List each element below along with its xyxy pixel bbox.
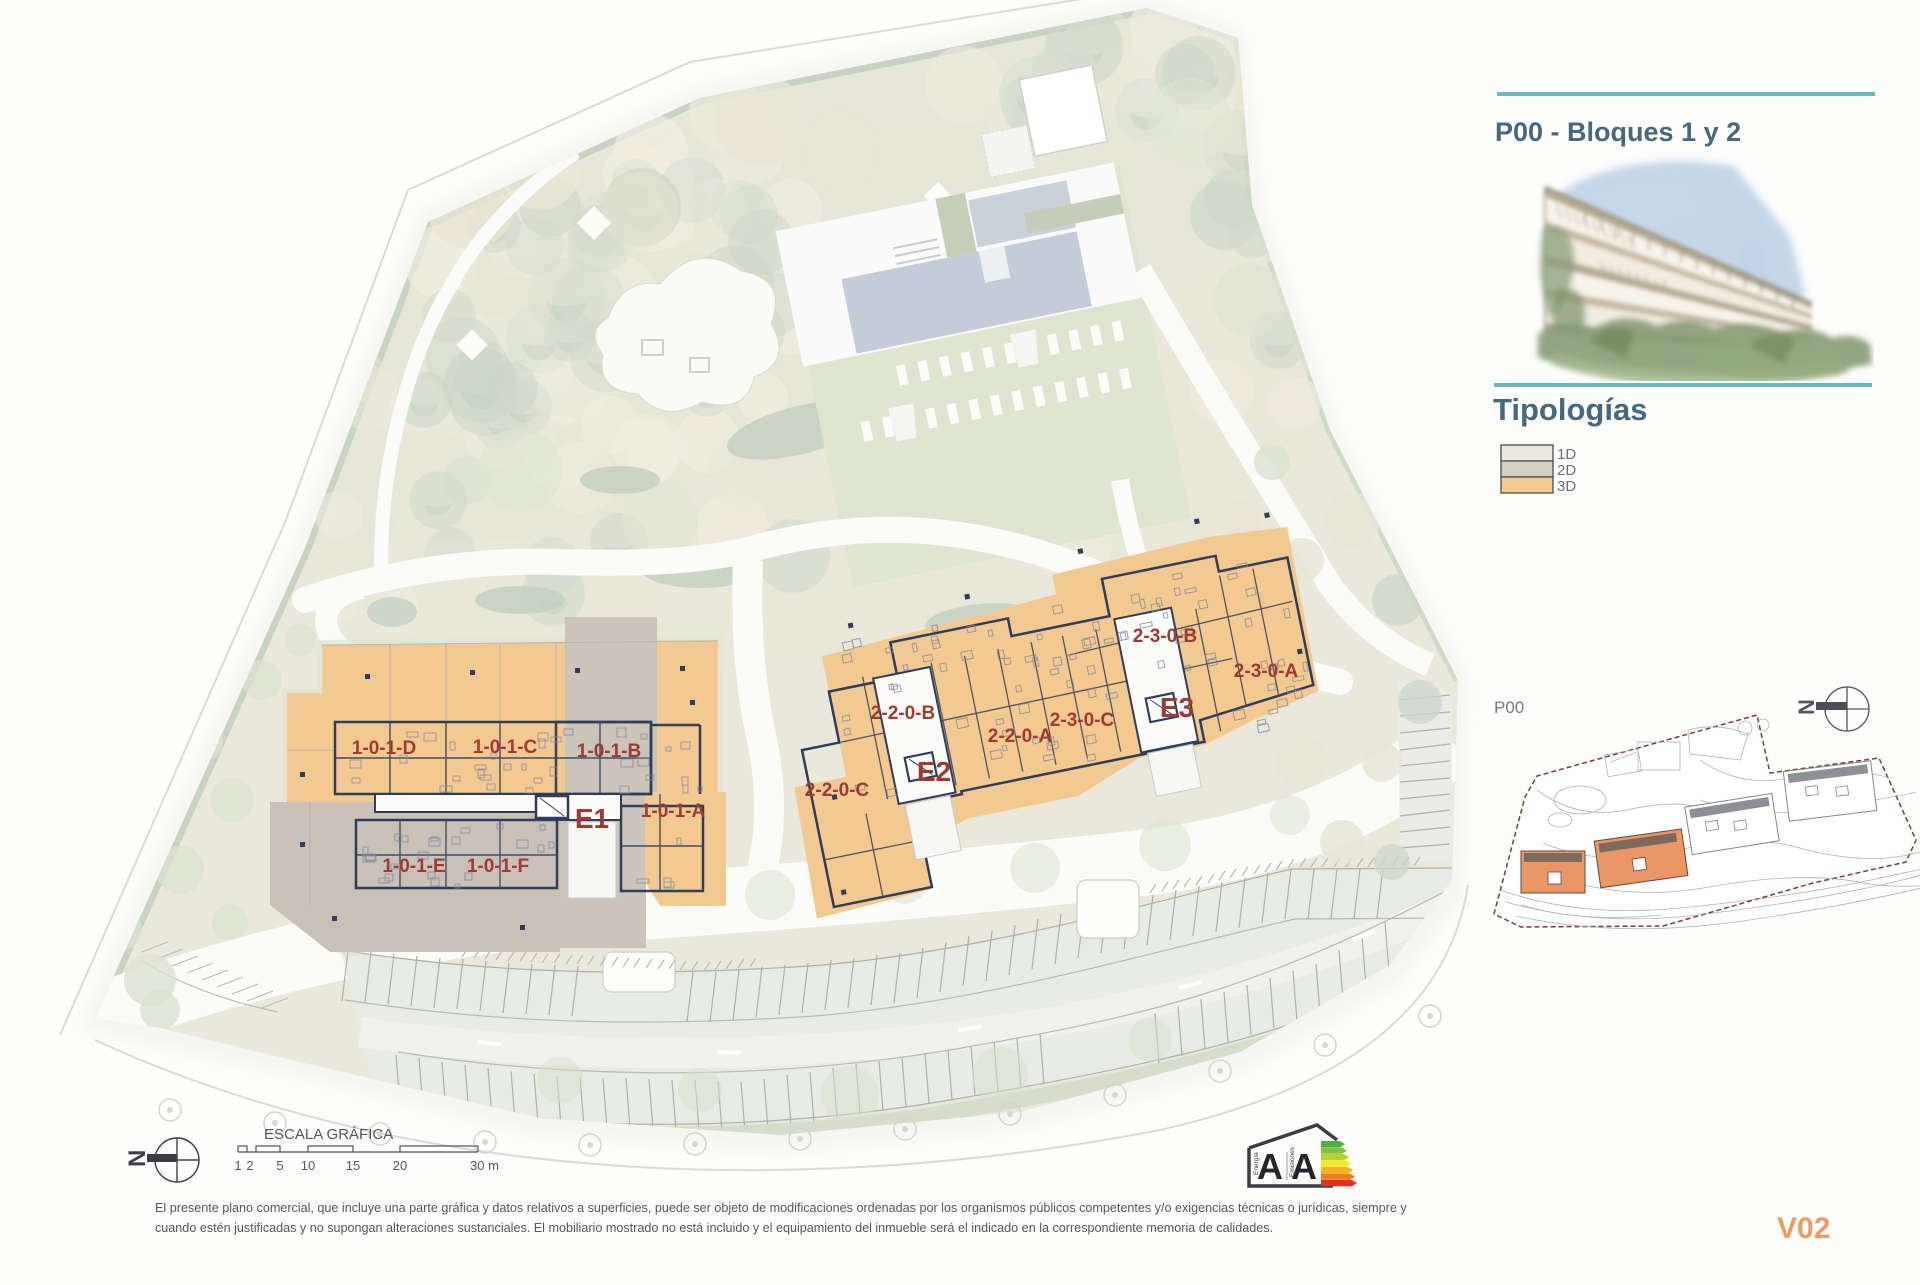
svg-text:N: N xyxy=(124,1150,151,1167)
svg-text:Energía: Energía xyxy=(1253,1152,1260,1175)
svg-text:1-0-1-F: 1-0-1-F xyxy=(467,856,529,877)
svg-text:2-2-0-A: 2-2-0-A xyxy=(988,726,1053,747)
svg-text:P00: P00 xyxy=(1494,698,1524,717)
svg-text:Emisiones: Emisiones xyxy=(1289,1146,1296,1177)
svg-text:10: 10 xyxy=(301,1158,315,1173)
svg-text:1-0-1-C: 1-0-1-C xyxy=(473,737,538,758)
svg-text:1-0-1-A: 1-0-1-A xyxy=(641,801,706,822)
svg-text:2D: 2D xyxy=(1557,462,1576,479)
svg-text:N: N xyxy=(1794,699,1819,715)
svg-text:E2: E2 xyxy=(917,756,951,787)
svg-text:El presente plano comercial, q: El presente plano comercial, que incluye… xyxy=(155,1201,1407,1215)
svg-text:15: 15 xyxy=(346,1158,360,1173)
svg-text:V02: V02 xyxy=(1777,1212,1830,1245)
svg-text:ESCALA GRÁFICA: ESCALA GRÁFICA xyxy=(264,1126,393,1143)
svg-text:E3: E3 xyxy=(1160,692,1194,723)
svg-text:2-3-0-A: 2-3-0-A xyxy=(1234,661,1299,682)
svg-text:1D: 1D xyxy=(1557,446,1576,463)
svg-text:A: A xyxy=(1257,1146,1283,1187)
svg-text:1-0-1-E: 1-0-1-E xyxy=(382,856,445,877)
svg-text:E1: E1 xyxy=(575,803,609,834)
svg-text:Tipologías: Tipologías xyxy=(1493,392,1647,427)
svg-text:1-0-1-B: 1-0-1-B xyxy=(577,741,641,762)
svg-text:2-2-0-B: 2-2-0-B xyxy=(871,703,935,724)
svg-text:3D: 3D xyxy=(1557,478,1576,495)
svg-text:1: 1 xyxy=(234,1158,241,1173)
svg-text:5: 5 xyxy=(276,1158,283,1173)
svg-text:2: 2 xyxy=(246,1158,253,1173)
svg-text:cuando estén justificadas y no: cuando estén justificadas y no supongan … xyxy=(155,1221,1273,1235)
svg-text:2-3-0-C: 2-3-0-C xyxy=(1050,710,1115,731)
svg-text:20: 20 xyxy=(393,1158,407,1173)
svg-text:30 m: 30 m xyxy=(470,1158,499,1173)
svg-text:2-3-0-B: 2-3-0-B xyxy=(1133,626,1197,647)
svg-text:1-0-1-D: 1-0-1-D xyxy=(352,738,416,759)
svg-text:P00 - Bloques 1 y 2: P00 - Bloques 1 y 2 xyxy=(1495,117,1741,147)
svg-text:2-2-0-C: 2-2-0-C xyxy=(805,780,870,801)
